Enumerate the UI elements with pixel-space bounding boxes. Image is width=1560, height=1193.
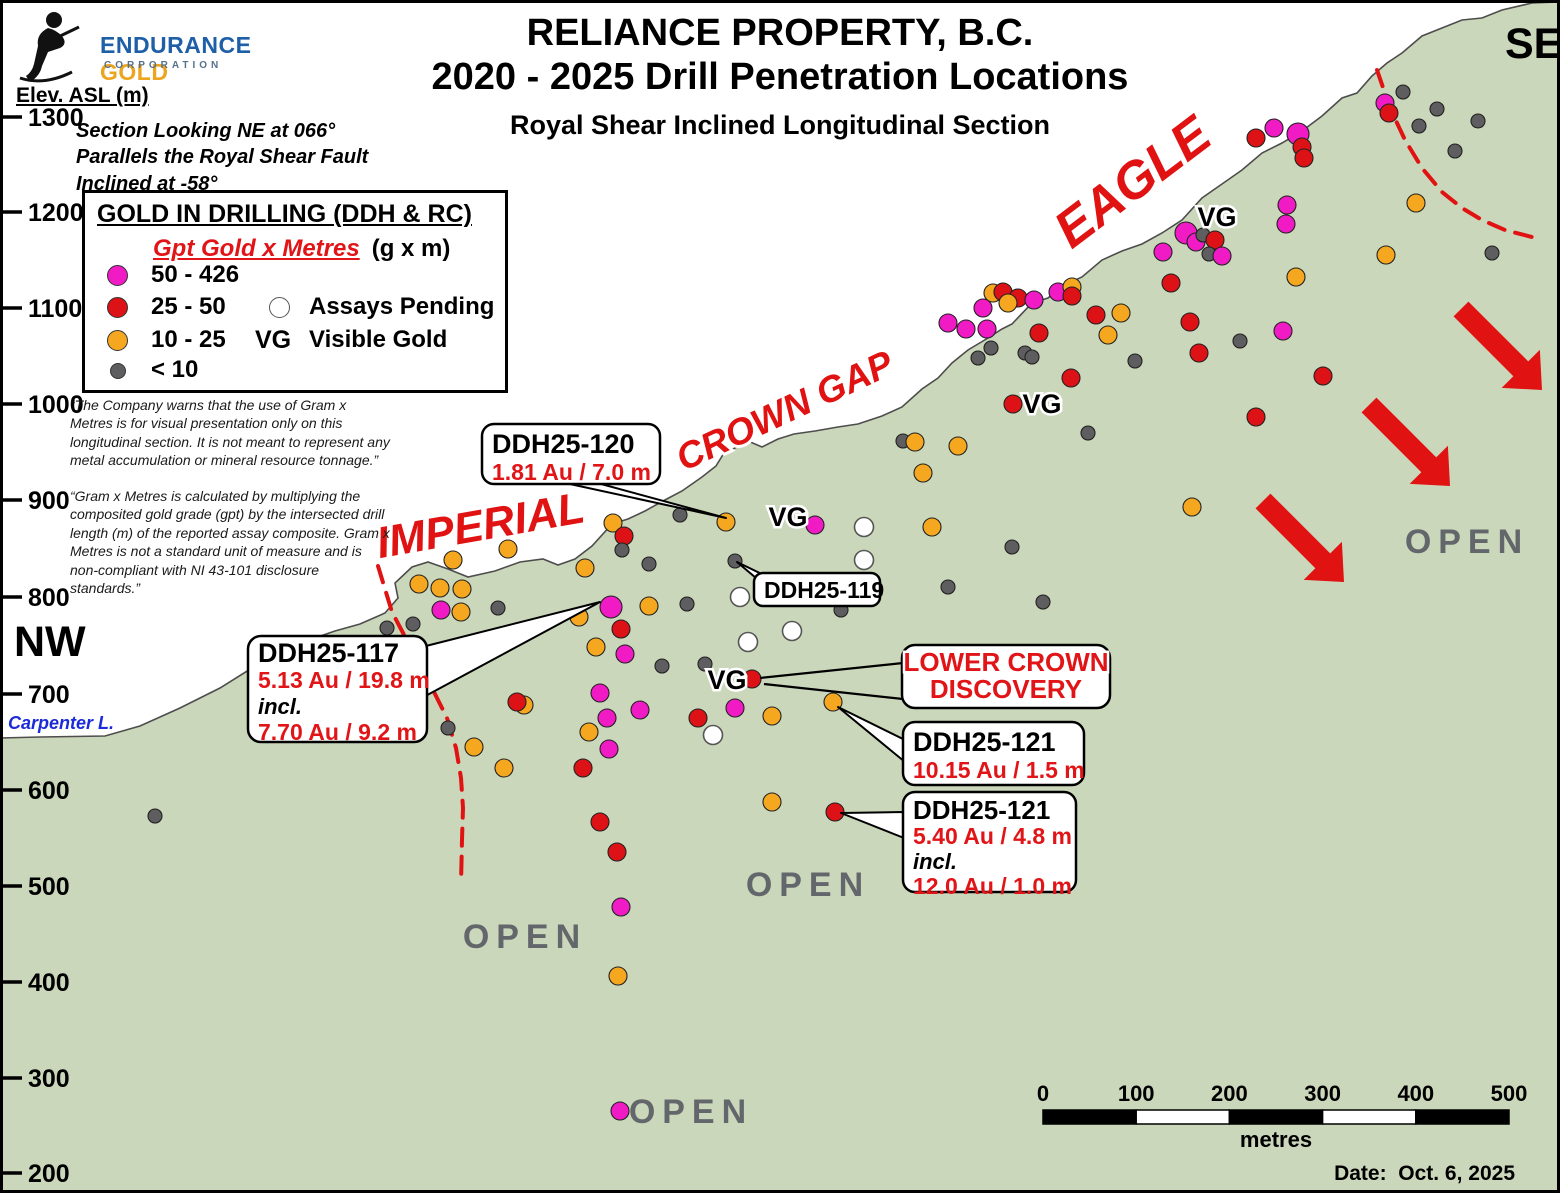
drill-intercept-gold-25-50: [1162, 274, 1180, 292]
drill-intercept-gold-50-426: [600, 596, 622, 618]
elev-tick-label: 1200: [28, 199, 84, 227]
drill-intercept-assay-pending: [704, 726, 723, 745]
drill-intercept-gold-10-25: [580, 723, 598, 741]
legend-units: (g x m): [372, 235, 451, 262]
scalebar-tick-label: 400: [1397, 1081, 1434, 1106]
drill-intercept-gold-25-50: [1004, 395, 1022, 413]
legend-title: GOLD IN DRILLING (DDH & RC): [97, 200, 472, 229]
drill-intercept-gold-25-50: [615, 527, 633, 545]
callout-ddh25-121b-text: DDH25-121: [913, 795, 1050, 825]
drill-intercept-gold-10-25: [1407, 194, 1425, 212]
carpenter-lake-label: Carpenter L.: [8, 713, 114, 734]
compass-se-label: SE: [1505, 20, 1560, 69]
drill-intercept-gold-50-426: [726, 699, 744, 717]
drill-intercept-gold-50-426: [612, 898, 630, 916]
drill-intercept-gold-10-25: [999, 294, 1017, 312]
drill-intercept-gold-10-25: [763, 793, 781, 811]
drill-intercept-gold-lt-10: [1471, 114, 1485, 128]
drill-intercept-gold-50-426: [957, 320, 975, 338]
drill-intercept-gold-10-25: [763, 707, 781, 725]
drill-intercept-gold-25-50: [612, 620, 630, 638]
scalebar-units-label: metres: [1240, 1127, 1312, 1152]
drill-intercept-gold-10-25: [640, 597, 658, 615]
drill-intercept-gold-10-25: [1099, 326, 1117, 344]
visible-gold-marker: VG: [768, 502, 807, 532]
visible-gold-marker: VG: [1197, 202, 1236, 232]
drill-intercept-gold-25-50: [1063, 287, 1081, 305]
scalebar-tick-label: 100: [1118, 1081, 1155, 1106]
elev-tick-label: 300: [28, 1065, 70, 1093]
scalebar-segment: [1136, 1110, 1229, 1124]
red-dot-icon: [107, 297, 128, 318]
scalebar-tick-label: 300: [1304, 1081, 1341, 1106]
elev-tick-label: 200: [28, 1160, 70, 1188]
drill-intercept-gold-10-25: [1112, 304, 1130, 322]
endurance-gold-logo: ENDURANCE GOLD CORPORATION: [14, 6, 314, 86]
drill-intercept-gold-25-50: [1295, 149, 1313, 167]
visible-gold-label: Visible Gold: [309, 326, 447, 354]
legend-subtitle: Gpt Gold x Metres(g x m): [153, 235, 450, 263]
drill-intercept-gold-lt-10: [1396, 85, 1410, 99]
drill-intercept-gold-50-426: [1278, 196, 1296, 214]
callout-lower-crown-text: LOWER CROWN: [903, 647, 1108, 677]
drill-intercept-gold-10-25: [576, 559, 594, 577]
legend-item-label: 10 - 25: [151, 326, 226, 354]
section-orientation-note: Section Looking NE at 066° Parallels the…: [76, 118, 368, 197]
open-label: OPEN: [1405, 523, 1529, 561]
drill-intercept-gold-lt-10: [1430, 102, 1444, 116]
drill-intercept-gold-10-25: [587, 638, 605, 656]
callout-ddh25-120-text: DDH25-120: [492, 429, 635, 459]
drill-intercept-gold-lt-10: [1448, 144, 1462, 158]
drill-intercept-gold-lt-10: [971, 351, 985, 365]
drill-intercept-gold-lt-10: [1485, 246, 1499, 260]
drill-intercept-gold-50-426: [1277, 215, 1295, 233]
drill-intercept-gold-10-25: [914, 464, 932, 482]
drill-intercept-gold-10-25: [609, 967, 627, 985]
drill-intercept-gold-lt-10: [1036, 595, 1050, 609]
elev-tick-label: 400: [28, 969, 70, 997]
callout-ddh25-121b-text: incl.: [913, 849, 957, 874]
drill-intercept-gold-10-25: [465, 738, 483, 756]
page-title: RELIANCE PROPERTY, B.C.: [280, 12, 1280, 55]
legend-item-10-25: 10 - 25 VG Visible Gold: [85, 325, 505, 355]
drill-intercept-gold-25-50: [1314, 367, 1332, 385]
drill-intercept-gold-25-50: [1380, 104, 1398, 122]
callout-ddh25-117-text: 7.70 Au / 9.2 m: [258, 719, 417, 745]
drill-intercept-gold-50-426: [1274, 322, 1292, 340]
vg-symbol: VG: [255, 326, 291, 355]
scalebar-tick-label: 500: [1491, 1081, 1528, 1106]
drill-intercept-gold-lt-10: [1005, 540, 1019, 554]
elevation-axis-label: Elev. ASL (m): [16, 84, 149, 108]
prospector-logo-icon: [14, 8, 80, 86]
drill-intercept-gold-lt-10: [1081, 426, 1095, 440]
legend: GOLD IN DRILLING (DDH & RC) Gpt Gold x M…: [82, 190, 508, 393]
disclaimer-paragraph-1: “The Company warns that the use of Gram …: [70, 396, 390, 470]
drill-intercept-gold-lt-10: [491, 601, 505, 615]
orange-dot-icon: [107, 330, 128, 351]
drill-intercept-gold-10-25: [949, 437, 967, 455]
drill-intercept-gold-25-50: [689, 709, 707, 727]
drill-intercept-gold-lt-10: [984, 341, 998, 355]
drill-intercept-gold-50-426: [616, 645, 634, 663]
elev-tick-label: 700: [28, 681, 70, 709]
drill-intercept-assay-pending: [731, 588, 750, 607]
callout-ddh25-121b-text: 12.0 Au / 1.0 m: [913, 873, 1072, 899]
scalebar-segment: [1043, 1110, 1136, 1124]
drill-intercept-gold-lt-10: [406, 617, 420, 631]
drill-intercept-assay-pending: [739, 633, 758, 652]
drill-intercept-gold-lt-10: [680, 597, 694, 611]
page-subtitle: Royal Shear Inclined Longitudinal Sectio…: [280, 110, 1280, 141]
drill-intercept-gold-25-50: [1087, 306, 1105, 324]
magenta-dot-icon: [107, 265, 128, 286]
drill-intercept-assay-pending: [783, 622, 802, 641]
callout-ddh25-121a-text: DDH25-121: [913, 727, 1056, 757]
legend-item-lt-10: < 10: [85, 355, 505, 385]
drill-intercept-gold-50-426: [591, 684, 609, 702]
drill-intercept-gold-25-50: [1062, 369, 1080, 387]
legend-item-label: 50 - 426: [151, 261, 239, 289]
drill-intercept-gold-lt-10: [441, 721, 455, 735]
scalebar-segment: [1229, 1110, 1322, 1124]
drill-intercept-gold-lt-10: [941, 580, 955, 594]
page-title-line2: 2020 - 2025 Drill Penetration Locations: [280, 56, 1280, 99]
drill-intercept-gold-lt-10: [642, 557, 656, 571]
elev-tick-label: 600: [28, 777, 70, 805]
callout-ddh25-117-text: 5.13 Au / 19.8 m: [258, 667, 430, 693]
elev-tick-label: 500: [28, 873, 70, 901]
callout-ddh25-120-text: 1.81 Au / 7.0 m: [492, 459, 651, 485]
drill-intercept-gold-10-25: [923, 518, 941, 536]
elev-tick-label: 800: [28, 584, 70, 612]
elev-tick-label: 900: [28, 487, 70, 515]
drill-intercept-gold-10-25: [495, 759, 513, 777]
callout-lower-crown-text: DISCOVERY: [930, 674, 1082, 704]
drill-intercept-gold-25-50: [574, 759, 592, 777]
drill-intercept-gold-50-426: [1213, 247, 1231, 265]
open-label: OPEN: [463, 918, 587, 956]
drill-intercept-gold-10-25: [1183, 498, 1201, 516]
drill-intercept-gold-lt-10: [655, 659, 669, 673]
legend-item-label: < 10: [151, 356, 198, 384]
drill-intercept-gold-25-50: [591, 813, 609, 831]
drill-intercept-gold-lt-10: [380, 621, 394, 635]
longitudinal-section-figure: DDH25-1175.13 Au / 19.8 mincl.7.70 Au / …: [0, 0, 1560, 1193]
disclaimer-paragraph-2: “Gram x Metres is calculated by multiply…: [70, 487, 390, 598]
zone-label-imperial: IMPERIAL: [373, 483, 589, 568]
open-label: OPEN: [629, 1093, 753, 1131]
drill-intercept-gold-10-25: [453, 580, 471, 598]
drill-intercept-gold-25-50: [1206, 231, 1224, 249]
drill-intercept-gold-lt-10: [1233, 334, 1247, 348]
drill-intercept-gold-10-25: [431, 579, 449, 597]
drill-intercept-gold-lt-10: [1128, 354, 1142, 368]
drill-intercept-assay-pending: [855, 518, 874, 537]
drill-intercept-gold-25-50: [1247, 408, 1265, 426]
scalebar-tick-label: 200: [1211, 1081, 1248, 1106]
callout-ddh25-117-text: incl.: [258, 694, 302, 719]
logo-endurance-text: ENDURANCE: [100, 32, 251, 58]
drill-intercept-gold-50-426: [974, 299, 992, 317]
drill-intercept-gold-50-426: [806, 516, 824, 534]
callout-ddh25-119-text: DDH25-119: [764, 577, 884, 603]
visible-gold-marker: VG: [707, 665, 746, 695]
drill-intercept-gold-lt-10: [673, 508, 687, 522]
drill-intercept-gold-50-426: [978, 320, 996, 338]
scalebar-segment: [1416, 1110, 1509, 1124]
drill-intercept-gold-10-25: [410, 575, 428, 593]
drill-intercept-gold-50-426: [1154, 243, 1172, 261]
drill-intercept-gold-50-426: [1025, 291, 1043, 309]
drill-intercept-gold-50-426: [611, 1102, 629, 1120]
elev-tick-label: 1100: [28, 295, 82, 323]
legend-subtitle-red: Gpt Gold x Metres: [153, 235, 360, 262]
drill-intercept-gold-50-426: [432, 601, 450, 619]
drill-intercept-gold-lt-10: [1412, 119, 1426, 133]
callout-ddh25-121b-text: 5.40 Au / 4.8 m: [913, 823, 1072, 849]
date-label: Date: Oct. 6, 2025: [1334, 1162, 1515, 1186]
assays-pending-label: Assays Pending: [309, 293, 494, 321]
legend-item-50-426: 50 - 426: [85, 260, 505, 290]
callout-ddh25-121a-text: 10.15 Au / 1.5 m: [913, 757, 1085, 783]
scalebar-segment: [1323, 1110, 1416, 1124]
drill-intercept-gold-10-25: [906, 433, 924, 451]
drill-intercept-gold-10-25: [1287, 268, 1305, 286]
callout-ddh25-117-text: DDH25-117: [258, 638, 399, 668]
drill-intercept-gold-25-50: [508, 693, 526, 711]
open-label: OPEN: [746, 866, 870, 904]
drill-intercept-gold-25-50: [1190, 344, 1208, 362]
compass-nw-label: NW: [14, 618, 86, 667]
drill-intercept-gold-lt-10: [148, 809, 162, 823]
visible-gold-marker: VG: [1022, 389, 1061, 419]
drill-intercept-gold-50-426: [598, 709, 616, 727]
drill-intercept-gold-50-426: [600, 740, 618, 758]
drill-intercept-gold-25-50: [1030, 324, 1048, 342]
legend-item-25-50: 25 - 50 Assays Pending: [85, 292, 505, 322]
drill-intercept-gold-50-426: [631, 701, 649, 719]
drill-intercept-gold-25-50: [608, 843, 626, 861]
gray-dot-icon: [110, 363, 126, 379]
drill-intercept-gold-50-426: [939, 314, 957, 332]
drill-intercept-gold-lt-10: [728, 554, 742, 568]
drill-intercept-gold-25-50: [1181, 313, 1199, 331]
legend-item-label: 25 - 50: [151, 293, 226, 321]
drill-intercept-gold-10-25: [1377, 246, 1395, 264]
assays-pending-circle-icon: [269, 297, 290, 318]
disclaimer-block: “The Company warns that the use of Gram …: [70, 396, 390, 615]
scalebar-tick-label: 0: [1037, 1081, 1049, 1106]
drill-intercept-gold-10-25: [452, 603, 470, 621]
drill-intercept-gold-lt-10: [1025, 350, 1039, 364]
drill-intercept-gold-lt-10: [615, 543, 629, 557]
logo-corporation-text: CORPORATION: [104, 60, 222, 71]
drill-intercept-assay-pending: [855, 551, 874, 570]
